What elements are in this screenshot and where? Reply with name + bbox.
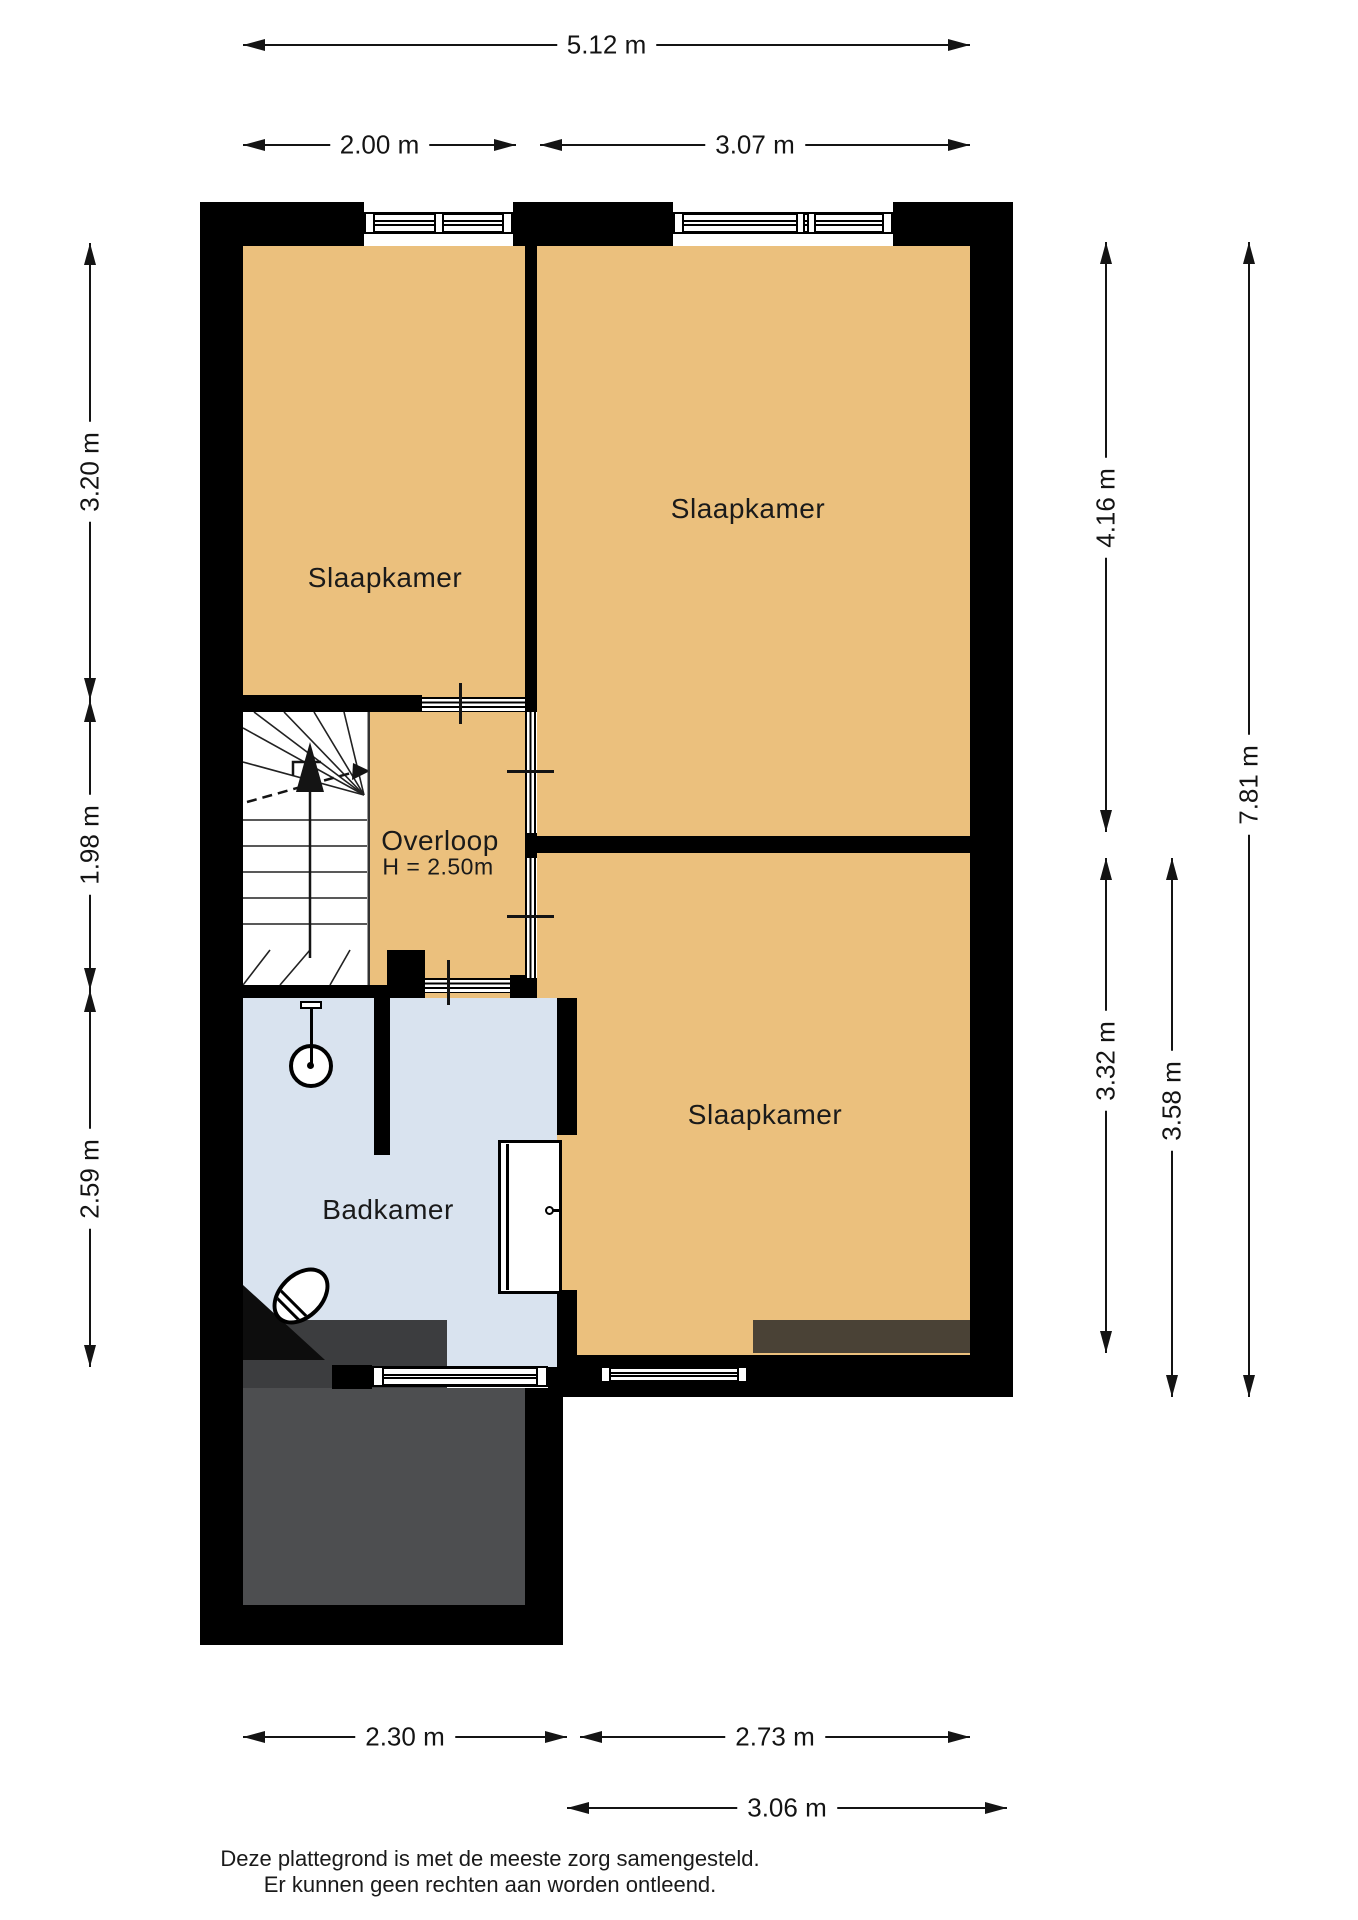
opening-tick (507, 770, 554, 773)
staircase (243, 712, 370, 985)
opening-landing-top (422, 697, 525, 712)
dimension-top-left-room: 2.00 m (243, 138, 516, 152)
key-icon-stem (553, 1209, 561, 1212)
floor-plan: Slaapkamer Slaapkamer Slaapkamer Badkame… (0, 0, 1358, 1920)
window-cap (882, 212, 893, 234)
wall-right (970, 202, 1013, 1397)
window-mullion (807, 212, 816, 234)
opening-landing-right-upper (525, 712, 537, 833)
wall-top-b (513, 202, 673, 246)
wall-bathroom-sill (332, 1365, 372, 1389)
footer-disclaimer-line2: Er kunnen geen rechten aan worden ontlee… (264, 1872, 717, 1898)
opening-tick (459, 683, 462, 724)
wall-under-stairs (243, 985, 390, 998)
dimension-right-lower-outer: 3.58 m (1165, 858, 1179, 1397)
dimension-left-middle: 1.98 m (83, 700, 97, 990)
wall-bathroom-bedroom-upper (557, 998, 577, 1135)
room-label-bedroom-bottom-right: Slaapkamer (688, 1099, 842, 1131)
dimension-bottom-bathroom: 2.30 m (243, 1730, 567, 1744)
opening-tick (447, 960, 450, 1005)
window-cap (737, 1366, 748, 1383)
window-mullion (796, 212, 805, 234)
window-cap (372, 1366, 384, 1387)
window-cap (502, 212, 513, 234)
wall-block-landing-bathroom (387, 950, 425, 998)
window-cap (600, 1366, 611, 1383)
dimension-top-right-room: 3.07 m (540, 138, 970, 152)
dimension-top-total: 5.12 m (243, 38, 970, 52)
window-cap (536, 1366, 548, 1387)
room-label-bathroom: Badkamer (322, 1194, 454, 1226)
dimension-right-upper-room: 4.16 m (1099, 242, 1113, 832)
window-bedroom-bottom (600, 1366, 748, 1383)
dimension-left-top: 3.20 m (83, 243, 97, 700)
bedroom-top-right-floor (537, 246, 970, 836)
opening-tick (507, 915, 554, 918)
lower-roof-area (243, 1388, 525, 1605)
wall-lower-block-right (525, 1388, 563, 1645)
room-label-bedroom-top-right: Slaapkamer (671, 493, 825, 525)
dimension-bottom-outer: 3.06 m (567, 1801, 1007, 1815)
dimension-right-lower-room: 3.32 m (1099, 858, 1113, 1353)
window-top-right (673, 212, 893, 234)
window-cap (673, 212, 684, 234)
dimension-left-bottom: 2.59 m (83, 990, 97, 1367)
wall-connector (548, 1367, 567, 1397)
opening-landing-right-lower (525, 858, 537, 978)
wall-left (200, 202, 243, 1645)
room-label-landing-height: H = 2.50m (382, 854, 493, 881)
bedroom-top-left-floor (243, 246, 525, 695)
window-mullion (434, 212, 444, 234)
wall-under-bedroom-top-left (243, 695, 422, 712)
window-bathroom (372, 1366, 548, 1387)
wall-between-top-bedrooms (525, 246, 537, 712)
dimension-right-total: 7.81 m (1242, 242, 1256, 1397)
room-label-bedroom-top-left: Slaapkamer (308, 562, 462, 594)
door-leaf-line (506, 1144, 509, 1290)
opening-landing-bottom (425, 978, 510, 993)
wall-stub-landing-right (525, 833, 537, 858)
footer-disclaimer-line1: Deze plattegrond is met de meeste zorg s… (220, 1846, 759, 1872)
room-label-landing: Overloop (381, 825, 499, 857)
window-cap (364, 212, 375, 234)
wall-bathroom-partition (374, 998, 390, 1155)
dormer-ledge (753, 1320, 970, 1353)
dimension-bottom-bedroom: 2.73 m (580, 1730, 970, 1744)
wall-corner-landing-bottom-right (510, 975, 537, 998)
wall-between-right-bedrooms (537, 836, 970, 853)
wall-top-a (200, 202, 364, 246)
wall-lower-block-bottom (200, 1605, 563, 1645)
